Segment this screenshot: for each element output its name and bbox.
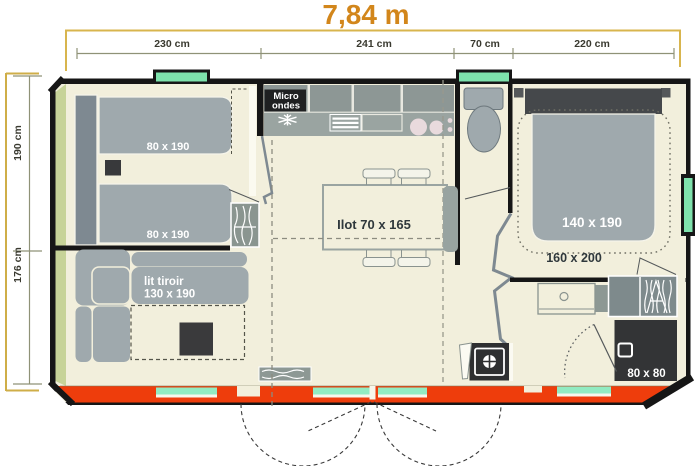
svg-text:140 x 190: 140 x 190 <box>562 215 622 230</box>
svg-text:ondes: ondes <box>272 101 300 112</box>
svg-text:220 cm: 220 cm <box>574 38 610 50</box>
svg-text:80 x 190: 80 x 190 <box>147 229 190 241</box>
svg-text:lit tiroir: lit tiroir <box>144 276 184 288</box>
svg-text:70 cm: 70 cm <box>470 38 500 50</box>
svg-text:230 cm: 230 cm <box>154 38 190 50</box>
svg-text:80 x 80: 80 x 80 <box>627 368 665 380</box>
svg-text:190 cm: 190 cm <box>12 125 24 161</box>
svg-text:7,84 m: 7,84 m <box>322 0 409 30</box>
svg-text:176 cm: 176 cm <box>12 247 24 283</box>
svg-text:80 x 190: 80 x 190 <box>147 141 190 153</box>
svg-text:130 x 190: 130 x 190 <box>144 289 195 301</box>
svg-text:241 cm: 241 cm <box>356 38 392 50</box>
svg-text:Ilot 70 x 165: Ilot 70 x 165 <box>337 217 411 232</box>
svg-text:160 x 200: 160 x 200 <box>546 251 602 265</box>
